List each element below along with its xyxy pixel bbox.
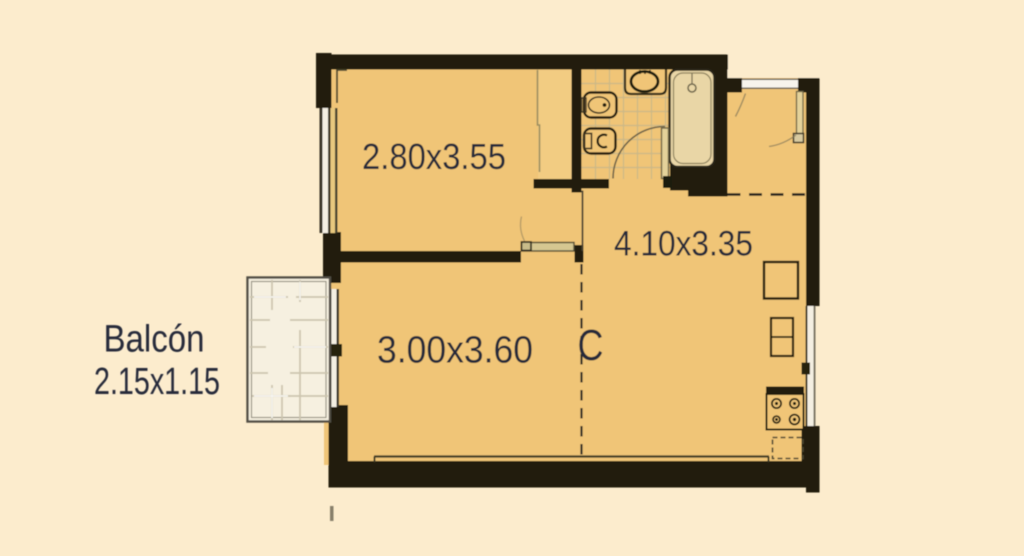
svg-text:C: C xyxy=(578,321,604,370)
svg-text:2.15x1.15: 2.15x1.15 xyxy=(94,361,220,403)
svg-text:3.00x3.60: 3.00x3.60 xyxy=(377,330,533,372)
svg-text:4.10x3.35: 4.10x3.35 xyxy=(614,225,753,264)
svg-text:Balcón: Balcón xyxy=(104,319,205,361)
svg-text:2.80x3.55: 2.80x3.55 xyxy=(362,136,506,177)
